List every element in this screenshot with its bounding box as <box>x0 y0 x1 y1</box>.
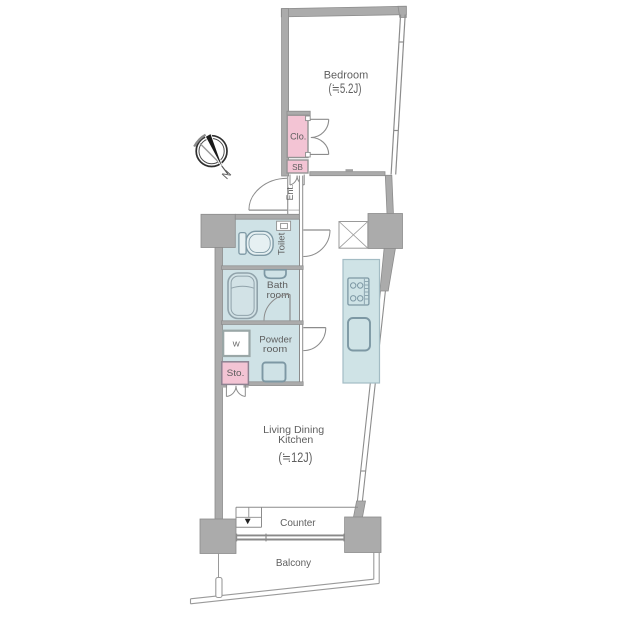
svg-text:Sto.: Sto. <box>227 368 245 379</box>
svg-text:(≒12J): (≒12J) <box>278 450 312 466</box>
svg-text:room: room <box>263 344 287 355</box>
svg-text:Ent.: Ent. <box>285 185 295 201</box>
svg-text:Clo.: Clo. <box>290 131 306 141</box>
svg-text:Kitchen: Kitchen <box>278 435 313 446</box>
svg-text:SB: SB <box>292 162 303 172</box>
svg-text:Toilet: Toilet <box>277 232 287 255</box>
svg-text:Balcony: Balcony <box>276 558 312 569</box>
svg-text:Counter: Counter <box>280 518 316 529</box>
svg-text:W: W <box>233 340 241 349</box>
svg-text:Bedroom: Bedroom <box>324 69 369 81</box>
svg-text:(≒5.2J): (≒5.2J) <box>329 81 362 97</box>
svg-text:Bath: Bath <box>267 280 288 290</box>
